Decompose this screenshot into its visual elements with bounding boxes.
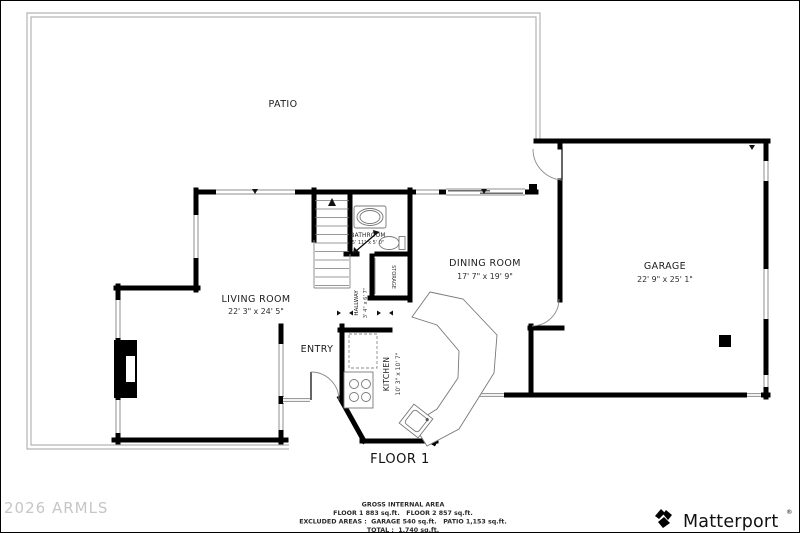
living-room-label: LIVING ROOM bbox=[221, 294, 290, 305]
walls bbox=[114, 141, 768, 443]
dining-room-label: DINING ROOM bbox=[449, 258, 521, 269]
floor-plan-page: PATIO LIVING ROOM 22' 3" x 24' 5" DINING… bbox=[0, 0, 800, 533]
burner bbox=[362, 393, 371, 402]
floor-plan-canvas: PATIO LIVING ROOM 22' 3" x 24' 5" DINING… bbox=[0, 0, 800, 533]
dining-room-dims: 17' 7" x 19' 9" bbox=[457, 272, 513, 281]
area-summary-line2: EXCLUDED AREAS : GARAGE 540 sq.ft. PATIO… bbox=[299, 519, 507, 526]
stairs-up-arrow bbox=[328, 198, 336, 206]
garage-patio-door-arc bbox=[533, 149, 562, 180]
kitchen-label: KITCHEN bbox=[382, 357, 391, 392]
staircase bbox=[314, 198, 350, 288]
matterport-logo-icon bbox=[655, 509, 672, 528]
living-room-dims: 22' 3" x 24' 5" bbox=[228, 307, 284, 316]
area-summary: GROSS INTERNAL AREA FLOOR 1 883 sq.ft. F… bbox=[299, 502, 507, 533]
registered-mark: ® bbox=[786, 508, 793, 516]
area-summary-title: GROSS INTERNAL AREA bbox=[362, 502, 445, 509]
patio-label: PATIO bbox=[269, 99, 298, 110]
storage-label: STORAGE bbox=[390, 265, 396, 289]
hallway-label: HALLWAY bbox=[354, 290, 360, 316]
floor-label: FLOOR 1 bbox=[370, 452, 430, 467]
hallway-dims: 3' 4" x 6' 7" bbox=[363, 288, 369, 319]
area-summary-line3: TOTAL : 1,740 sq.ft. bbox=[367, 527, 439, 533]
bathroom-dims: 5' 11" x 5' 0" bbox=[352, 240, 385, 246]
entry-door-arc bbox=[311, 372, 339, 400]
refrigerator bbox=[349, 334, 377, 368]
garage-post bbox=[719, 335, 731, 347]
area-summary-line1: FLOOR 1 883 sq.ft. FLOOR 2 857 sq.ft. bbox=[333, 510, 473, 517]
fireplace bbox=[114, 340, 137, 398]
bathroom-label: BATHROOM bbox=[350, 233, 385, 239]
garage-label: GARAGE bbox=[644, 261, 686, 272]
garage-dining-door-arc bbox=[532, 299, 559, 326]
wall-stub-dining bbox=[529, 184, 537, 194]
window-tick bbox=[749, 145, 755, 150]
kitchen-dims: 10' 3" x 10' 7" bbox=[395, 352, 402, 395]
matterport-wordmark: Matterport bbox=[683, 512, 778, 532]
burner bbox=[362, 380, 371, 389]
burner bbox=[350, 393, 359, 402]
stove-counter bbox=[344, 372, 373, 408]
matterport-brand: Matterport ® bbox=[655, 508, 793, 532]
garage-dims: 22' 9" x 25' 1" bbox=[637, 275, 693, 284]
armls-watermark: 2026 ARMLS bbox=[4, 499, 108, 517]
burner bbox=[350, 380, 359, 389]
entry-label: ENTRY bbox=[301, 344, 334, 355]
